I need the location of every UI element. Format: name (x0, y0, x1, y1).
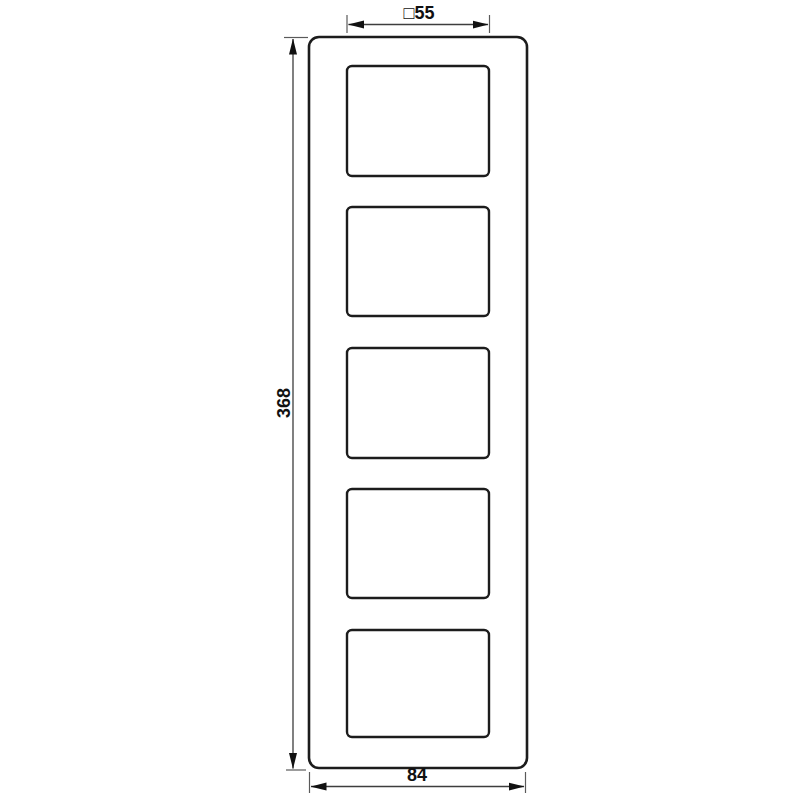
dimension-height: 368 (274, 38, 308, 771)
dimension-cutout-width: □55 (347, 3, 490, 33)
drawing-canvas: □55 368 84 (0, 0, 800, 800)
cutout-opening-3 (347, 348, 489, 458)
cutout-opening-5 (347, 630, 489, 737)
dimension-label-width: 84 (407, 765, 427, 785)
cutout-opening-2 (347, 207, 489, 316)
dimension-label-cutout-width: □55 (404, 3, 435, 23)
technical-drawing: □55 368 84 (0, 0, 800, 800)
cutout-opening-4 (347, 489, 489, 598)
frame (309, 37, 527, 768)
dimension-label-height: 368 (274, 388, 294, 418)
cutout-opening-1 (347, 66, 489, 176)
